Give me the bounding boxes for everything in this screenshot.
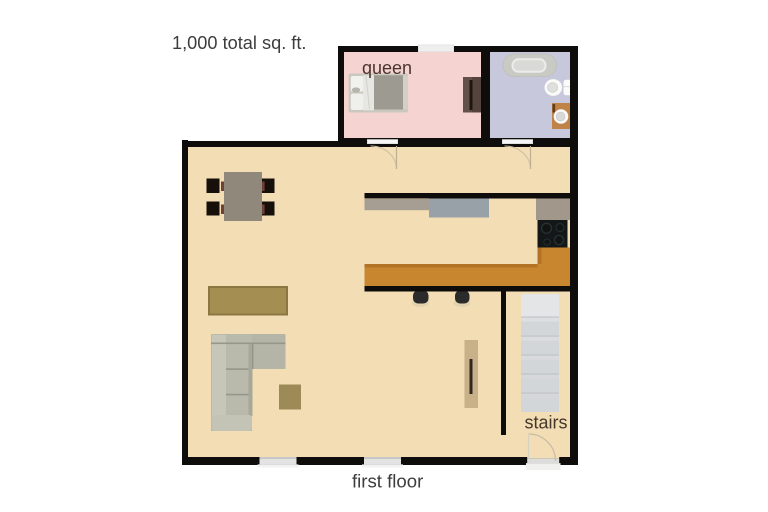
- svg-text:queen: queen: [362, 58, 412, 78]
- svg-text:first floor: first floor: [352, 471, 423, 492]
- svg-text:1,000 total sq. ft.: 1,000 total sq. ft.: [172, 33, 306, 53]
- svg-text:stairs: stairs: [525, 413, 568, 433]
